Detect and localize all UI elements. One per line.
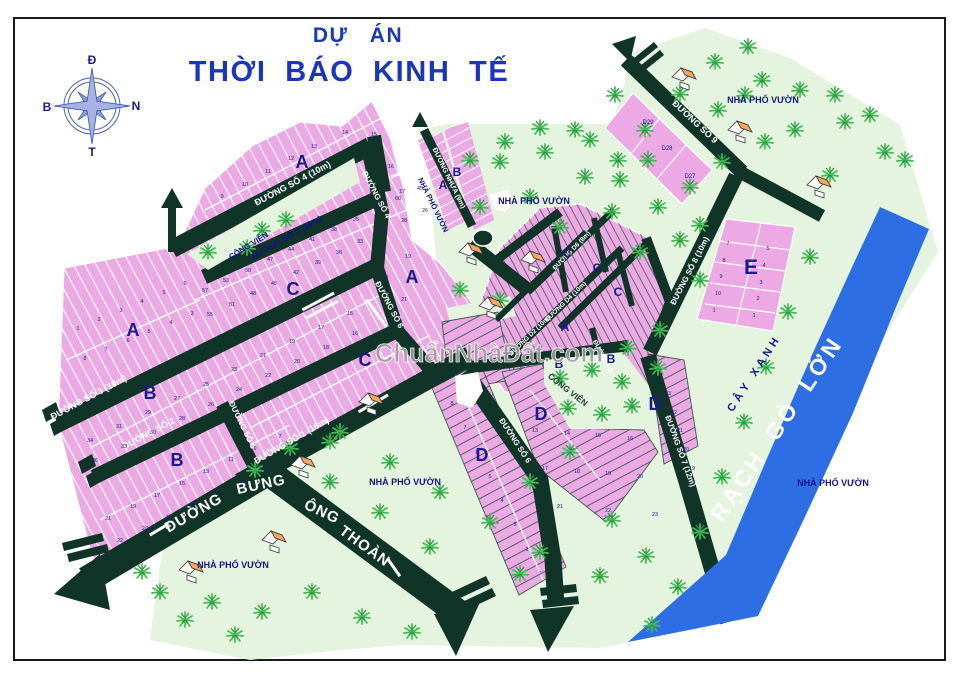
svg-text:57: 57 bbox=[202, 288, 208, 294]
svg-text:6: 6 bbox=[475, 450, 478, 456]
svg-text:D29: D29 bbox=[642, 120, 654, 126]
svg-text:5: 5 bbox=[162, 290, 165, 296]
svg-text:7: 7 bbox=[726, 241, 729, 247]
svg-text:31: 31 bbox=[116, 424, 122, 430]
svg-text:17: 17 bbox=[154, 493, 160, 499]
svg-text:45: 45 bbox=[417, 186, 423, 192]
svg-text:15: 15 bbox=[347, 311, 353, 317]
svg-text:50: 50 bbox=[245, 268, 251, 274]
svg-text:21: 21 bbox=[677, 428, 683, 434]
svg-text:6: 6 bbox=[126, 338, 129, 344]
svg-text:21: 21 bbox=[557, 504, 563, 510]
svg-text:7: 7 bbox=[463, 425, 466, 431]
svg-text:13: 13 bbox=[203, 469, 209, 475]
svg-text:16: 16 bbox=[627, 436, 633, 442]
svg-text:8: 8 bbox=[722, 258, 725, 264]
svg-text:18: 18 bbox=[323, 345, 329, 351]
svg-text:24: 24 bbox=[236, 387, 242, 393]
svg-text:4: 4 bbox=[169, 320, 172, 326]
svg-text:3: 3 bbox=[759, 280, 762, 286]
svg-text:1: 1 bbox=[538, 571, 541, 577]
svg-text:8: 8 bbox=[450, 401, 453, 407]
svg-text:39: 39 bbox=[315, 260, 321, 266]
svg-text:7: 7 bbox=[104, 347, 107, 353]
svg-text:12: 12 bbox=[288, 156, 294, 162]
svg-text:16: 16 bbox=[388, 164, 394, 170]
svg-text:C: C bbox=[614, 285, 623, 299]
svg-text:8: 8 bbox=[290, 456, 293, 462]
svg-text:2: 2 bbox=[97, 317, 100, 323]
svg-text:15: 15 bbox=[371, 132, 377, 138]
svg-text:19: 19 bbox=[689, 466, 695, 472]
svg-text:35: 35 bbox=[353, 217, 359, 223]
svg-text:30: 30 bbox=[150, 430, 156, 436]
svg-text:Đ: Đ bbox=[88, 53, 97, 67]
svg-text:45: 45 bbox=[271, 281, 277, 287]
svg-text:60: 60 bbox=[395, 196, 401, 202]
svg-text:20: 20 bbox=[683, 447, 689, 453]
svg-text:D: D bbox=[649, 394, 662, 414]
svg-text:12: 12 bbox=[240, 479, 246, 485]
svg-text:18: 18 bbox=[574, 469, 580, 475]
svg-text:42: 42 bbox=[293, 270, 299, 276]
svg-text:B: B bbox=[43, 100, 52, 114]
svg-text:23: 23 bbox=[231, 367, 237, 373]
svg-text:20: 20 bbox=[637, 474, 643, 480]
svg-text:22: 22 bbox=[605, 508, 611, 514]
svg-text:C: C bbox=[359, 350, 372, 370]
svg-text:4: 4 bbox=[762, 263, 765, 269]
svg-text:NHÀ PHỐ VƯỜN: NHÀ PHỐ VƯỜN bbox=[369, 476, 441, 487]
svg-text:NHÀ PHỐ VƯỜN: NHÀ PHỐ VƯỜN bbox=[727, 94, 799, 105]
svg-text:N: N bbox=[132, 99, 141, 113]
svg-text:9: 9 bbox=[253, 446, 256, 452]
svg-text:28: 28 bbox=[401, 218, 407, 224]
svg-text:36: 36 bbox=[92, 458, 98, 464]
svg-text:D: D bbox=[535, 404, 548, 424]
svg-text:14: 14 bbox=[564, 431, 570, 437]
svg-text:2: 2 bbox=[525, 547, 528, 553]
svg-text:41: 41 bbox=[309, 237, 315, 243]
svg-text:C: C bbox=[593, 261, 602, 275]
svg-text:C: C bbox=[287, 279, 300, 299]
svg-text:20: 20 bbox=[382, 275, 388, 281]
svg-text:C: C bbox=[563, 246, 572, 260]
svg-text:33: 33 bbox=[121, 444, 127, 450]
svg-text:20: 20 bbox=[142, 526, 148, 532]
svg-text:19: 19 bbox=[405, 254, 411, 260]
svg-text:21: 21 bbox=[260, 353, 266, 359]
svg-text:A: A bbox=[406, 267, 419, 287]
svg-text:27: 27 bbox=[174, 396, 180, 402]
svg-text:A: A bbox=[296, 152, 309, 172]
svg-text:44: 44 bbox=[288, 247, 294, 253]
svg-text:22: 22 bbox=[265, 373, 271, 379]
svg-text:16: 16 bbox=[191, 503, 197, 509]
svg-text:B: B bbox=[144, 383, 157, 403]
svg-text:8: 8 bbox=[83, 356, 86, 362]
svg-text:4: 4 bbox=[500, 498, 503, 504]
svg-text:26: 26 bbox=[208, 402, 214, 408]
svg-text:19: 19 bbox=[289, 339, 295, 345]
svg-text:A: A bbox=[127, 320, 140, 340]
svg-text:THỜI BÁO KINH TẾ: THỜI BÁO KINH TẾ bbox=[189, 54, 510, 88]
svg-text:22: 22 bbox=[671, 410, 677, 416]
svg-text:47: 47 bbox=[267, 257, 273, 263]
svg-text:1: 1 bbox=[712, 308, 715, 314]
svg-text:25: 25 bbox=[203, 382, 209, 388]
svg-text:3: 3 bbox=[190, 311, 193, 317]
svg-text:15: 15 bbox=[595, 433, 601, 439]
svg-text:55: 55 bbox=[207, 312, 213, 318]
svg-text:6: 6 bbox=[183, 281, 186, 287]
svg-text:13: 13 bbox=[532, 428, 538, 434]
svg-text:21: 21 bbox=[401, 297, 407, 303]
svg-text:17: 17 bbox=[542, 466, 548, 472]
svg-text:NHÀ PHỐ VƯỜN: NHÀ PHỐ VƯỜN bbox=[197, 559, 269, 570]
svg-text:DỰ ÁN: DỰ ÁN bbox=[313, 24, 403, 47]
svg-text:30: 30 bbox=[379, 229, 385, 235]
svg-text:E: E bbox=[744, 256, 758, 279]
svg-text:28: 28 bbox=[179, 416, 185, 422]
svg-text:29: 29 bbox=[145, 410, 151, 416]
svg-text:17: 17 bbox=[318, 325, 324, 331]
svg-text:32: 32 bbox=[374, 206, 380, 212]
svg-text:53: 53 bbox=[223, 278, 229, 284]
svg-text:NHÀ PHỐ VƯỜN: NHÀ PHỐ VƯỜN bbox=[797, 477, 869, 488]
svg-text:3: 3 bbox=[119, 308, 122, 314]
svg-text:15: 15 bbox=[179, 481, 185, 487]
svg-text:20: 20 bbox=[294, 359, 300, 365]
svg-text:2: 2 bbox=[756, 296, 759, 302]
svg-text:5: 5 bbox=[147, 329, 150, 335]
svg-text:D27: D27 bbox=[684, 174, 696, 180]
svg-text:13: 13 bbox=[311, 144, 317, 150]
svg-text:23: 23 bbox=[665, 391, 671, 397]
svg-text:14: 14 bbox=[342, 130, 348, 136]
svg-text:51: 51 bbox=[229, 302, 235, 308]
svg-text:T: T bbox=[88, 145, 96, 159]
svg-text:1: 1 bbox=[76, 326, 79, 332]
svg-text:11: 11 bbox=[228, 457, 234, 463]
svg-text:4: 4 bbox=[140, 299, 143, 305]
svg-text:7: 7 bbox=[278, 434, 281, 440]
svg-text:5: 5 bbox=[766, 246, 769, 252]
svg-text:38: 38 bbox=[331, 227, 337, 233]
svg-text:34: 34 bbox=[87, 438, 93, 444]
svg-text:NHÀ PHỐ VƯỜN: NHÀ PHỐ VƯỜN bbox=[498, 195, 570, 206]
svg-text:A: A bbox=[439, 178, 448, 192]
svg-text:1: 1 bbox=[752, 313, 755, 319]
svg-text:16: 16 bbox=[352, 331, 358, 337]
svg-text:10: 10 bbox=[242, 182, 248, 188]
svg-text:26: 26 bbox=[422, 208, 428, 214]
svg-text:3: 3 bbox=[513, 522, 516, 528]
svg-text:33: 33 bbox=[357, 239, 363, 245]
svg-text:A: A bbox=[561, 320, 570, 334]
svg-text:23: 23 bbox=[652, 512, 658, 518]
svg-text:5: 5 bbox=[488, 474, 491, 480]
svg-text:ChuẩnNhàĐất.com: ChuẩnNhàĐất.com bbox=[375, 340, 603, 368]
svg-text:11: 11 bbox=[265, 169, 271, 175]
svg-text:9: 9 bbox=[719, 274, 722, 280]
svg-text:21: 21 bbox=[105, 516, 111, 522]
svg-text:B: B bbox=[453, 165, 462, 179]
svg-text:10: 10 bbox=[715, 291, 721, 297]
svg-text:14: 14 bbox=[215, 491, 221, 497]
svg-text:22: 22 bbox=[117, 538, 123, 544]
svg-text:19: 19 bbox=[130, 504, 136, 510]
svg-text:18: 18 bbox=[166, 515, 172, 521]
svg-text:19: 19 bbox=[605, 471, 611, 477]
svg-text:B: B bbox=[171, 450, 184, 470]
svg-text:17: 17 bbox=[399, 189, 405, 195]
svg-text:D28: D28 bbox=[661, 146, 673, 152]
svg-text:B: B bbox=[607, 352, 616, 366]
svg-text:10: 10 bbox=[264, 468, 270, 474]
svg-text:36: 36 bbox=[336, 250, 342, 256]
svg-text:48: 48 bbox=[250, 291, 256, 297]
svg-text:9: 9 bbox=[220, 194, 223, 200]
